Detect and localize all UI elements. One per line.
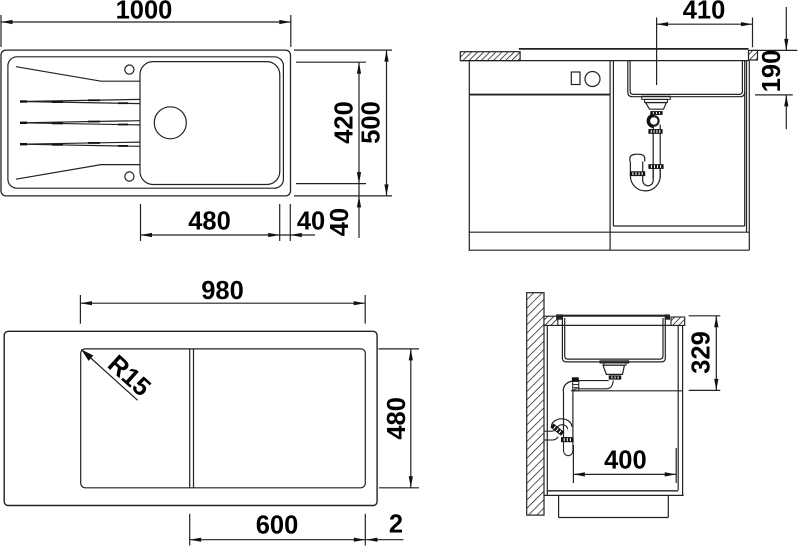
svg-text:980: 980 [201,277,244,305]
svg-text:329: 329 [688,331,716,374]
svg-text:2: 2 [389,511,403,539]
svg-text:480: 480 [188,208,231,236]
svg-text:400: 400 [604,446,647,474]
svg-text:40: 40 [326,208,354,236]
svg-text:190: 190 [758,50,786,93]
svg-text:410: 410 [683,0,726,25]
svg-text:420: 420 [331,101,359,144]
svg-text:500: 500 [358,101,386,144]
svg-text:600: 600 [256,512,299,540]
svg-text:1000: 1000 [116,0,173,25]
svg-text:480: 480 [383,397,411,440]
svg-text:40: 40 [297,208,325,236]
